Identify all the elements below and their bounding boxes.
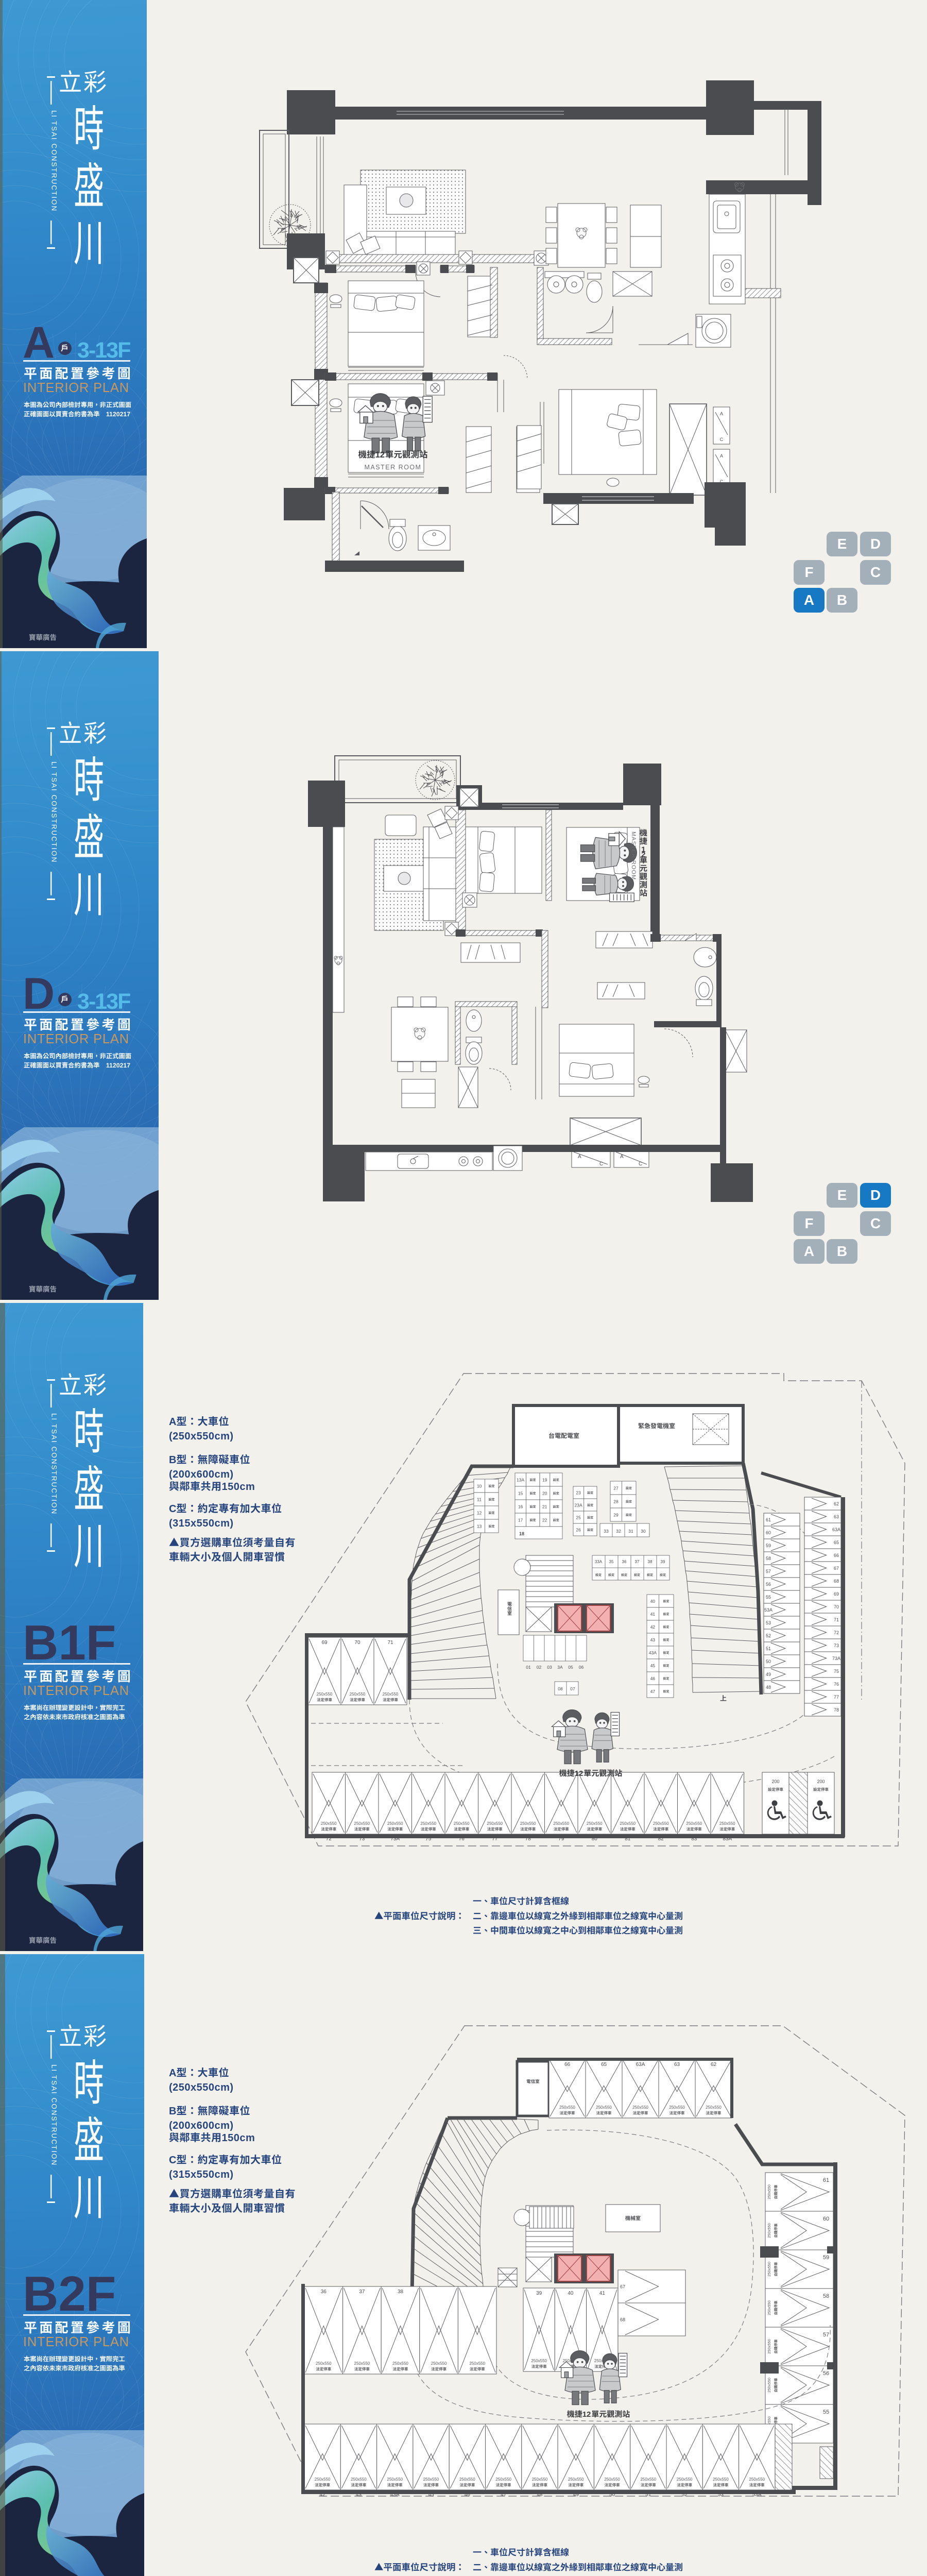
svg-text:250x550: 250x550	[568, 2477, 584, 2482]
svg-text:250x550: 250x550	[596, 2105, 612, 2110]
svg-text:38: 38	[398, 2289, 404, 2295]
svg-text:250x550: 250x550	[767, 2300, 771, 2315]
svg-text:61: 61	[823, 2177, 829, 2183]
svg-text:250x550: 250x550	[767, 2223, 771, 2238]
svg-text:38: 38	[648, 1560, 653, 1564]
svg-text:250x550: 250x550	[520, 1821, 536, 1826]
svg-text:250x550: 250x550	[532, 2477, 548, 2482]
svg-text:69: 69	[834, 1591, 839, 1597]
svg-text:63A: 63A	[636, 2062, 645, 2067]
svg-text:250x550: 250x550	[767, 2262, 771, 2277]
svg-text:3A: 3A	[557, 1665, 563, 1670]
svg-text:43: 43	[650, 1637, 656, 1642]
svg-text:C: C	[720, 437, 724, 442]
svg-text:250x550: 250x550	[459, 2477, 475, 2482]
svg-text:57: 57	[823, 2332, 829, 2338]
svg-text:43A: 43A	[649, 1650, 657, 1655]
svg-text:12: 12	[375, 450, 385, 460]
svg-text:70: 70	[834, 1604, 839, 1609]
svg-text:250x550: 250x550	[620, 1821, 636, 1826]
svg-text:250x550: 250x550	[392, 2361, 408, 2366]
svg-text:68: 68	[620, 2317, 625, 2323]
svg-text:41: 41	[650, 1612, 656, 1617]
svg-text:22: 22	[542, 1518, 547, 1523]
svg-text:250x550: 250x550	[350, 1692, 366, 1697]
svg-text:A: A	[620, 1154, 624, 1160]
svg-text:12: 12	[575, 1769, 583, 1778]
svg-text:07: 07	[570, 1686, 575, 1691]
svg-text:26: 26	[576, 1528, 581, 1533]
svg-text:250x550: 250x550	[495, 2477, 511, 2482]
svg-text:41: 41	[599, 2291, 606, 2296]
svg-text:37: 37	[635, 1560, 640, 1564]
svg-text:31: 31	[628, 1529, 633, 1534]
svg-text:27: 27	[613, 1486, 619, 1491]
svg-text:250x550: 250x550	[559, 2105, 575, 2110]
svg-text:63A: 63A	[832, 1527, 840, 1532]
svg-text:78: 78	[834, 1707, 839, 1713]
svg-text:15: 15	[518, 1491, 523, 1496]
svg-text:12: 12	[477, 1511, 482, 1516]
svg-text:250x550: 250x550	[686, 1821, 702, 1826]
svg-text:16: 16	[518, 1504, 523, 1510]
svg-text:70: 70	[354, 1640, 360, 1646]
svg-text:62: 62	[711, 2062, 717, 2067]
svg-text:71: 71	[834, 1617, 839, 1622]
svg-text:47: 47	[650, 1689, 656, 1694]
svg-text:63: 63	[674, 2062, 680, 2067]
svg-text:19: 19	[542, 1478, 547, 1483]
svg-text:250x550: 250x550	[354, 1821, 370, 1826]
svg-text:250x550: 250x550	[767, 2339, 771, 2354]
svg-text:250x550: 250x550	[321, 1821, 337, 1826]
svg-text:C: C	[639, 1161, 642, 1167]
svg-text:55: 55	[766, 1595, 771, 1600]
svg-text:250x550: 250x550	[653, 1821, 669, 1826]
svg-text:13A: 13A	[517, 1478, 524, 1483]
svg-text:250x550: 250x550	[587, 1821, 603, 1826]
svg-text:71: 71	[387, 1640, 393, 1646]
svg-text:250x550: 250x550	[531, 2359, 547, 2363]
svg-text:33A: 33A	[595, 1560, 603, 1564]
svg-text:73A: 73A	[832, 1656, 840, 1661]
svg-text:53: 53	[766, 1620, 771, 1625]
svg-text:08: 08	[558, 1686, 563, 1691]
svg-text:59: 59	[766, 1543, 771, 1548]
svg-text:250x550: 250x550	[713, 2477, 729, 2482]
svg-text:60: 60	[823, 2216, 829, 2222]
svg-text:45: 45	[650, 1663, 656, 1668]
svg-text:39: 39	[536, 2291, 542, 2296]
svg-text:33: 33	[604, 1529, 609, 1534]
svg-text:68: 68	[834, 1579, 839, 1584]
svg-text:250x550: 250x550	[454, 1821, 470, 1826]
svg-text:30: 30	[641, 1529, 646, 1534]
svg-text:05: 05	[568, 1665, 573, 1670]
svg-text:58: 58	[766, 1556, 771, 1561]
svg-text:40: 40	[568, 2291, 574, 2296]
svg-text:250x550: 250x550	[351, 2477, 367, 2482]
svg-text:250x550: 250x550	[487, 1821, 503, 1826]
svg-text:40: 40	[650, 1599, 656, 1604]
svg-text:75: 75	[834, 1669, 839, 1674]
svg-text:250x550: 250x550	[383, 1692, 399, 1697]
svg-text:250x550: 250x550	[767, 2378, 771, 2393]
svg-text:58: 58	[823, 2293, 829, 2299]
svg-text:250x550: 250x550	[669, 2105, 685, 2110]
svg-text:25: 25	[576, 1515, 581, 1520]
svg-text:250x550: 250x550	[317, 1692, 333, 1697]
svg-text:10: 10	[477, 1484, 482, 1489]
svg-text:250x550: 250x550	[431, 2361, 447, 2366]
svg-text:32: 32	[616, 1529, 621, 1534]
svg-text:250x550: 250x550	[469, 2361, 485, 2366]
svg-text:37: 37	[359, 2289, 365, 2295]
svg-text:250x550: 250x550	[354, 2361, 370, 2366]
svg-text:01: 01	[526, 1665, 531, 1670]
svg-text:77: 77	[834, 1694, 839, 1700]
svg-text:250x550: 250x550	[604, 2477, 620, 2482]
svg-text:56: 56	[766, 1582, 771, 1587]
svg-text:69: 69	[321, 1640, 328, 1646]
svg-text:28: 28	[613, 1499, 619, 1504]
svg-text:250x550: 250x550	[767, 2184, 771, 2199]
svg-text:A: A	[578, 1154, 581, 1160]
svg-text:200: 200	[817, 1779, 825, 1784]
svg-text:A: A	[720, 453, 723, 459]
svg-text:56: 56	[823, 2370, 829, 2377]
svg-text:18: 18	[519, 1531, 524, 1536]
svg-text:250x550: 250x550	[423, 2477, 439, 2482]
svg-text:60: 60	[766, 1530, 771, 1535]
svg-text:200: 200	[771, 1779, 779, 1784]
svg-text:36: 36	[622, 1560, 627, 1564]
svg-text:73: 73	[834, 1643, 839, 1648]
svg-text:250x550: 250x550	[387, 1821, 403, 1826]
svg-text:66: 66	[564, 2062, 571, 2067]
svg-text:61: 61	[766, 1517, 771, 1522]
svg-text:250x550: 250x550	[749, 2477, 765, 2482]
svg-text:23: 23	[576, 1490, 581, 1496]
svg-text:250x550: 250x550	[420, 1821, 436, 1826]
svg-text:02: 02	[537, 1665, 542, 1670]
svg-text:250x550: 250x550	[706, 2105, 722, 2110]
svg-text:67: 67	[620, 2284, 625, 2290]
svg-text:250x550: 250x550	[719, 1821, 735, 1826]
svg-text:C: C	[599, 1161, 603, 1167]
svg-text:12: 12	[582, 2410, 591, 2419]
svg-text:17: 17	[518, 1518, 523, 1523]
svg-text:76: 76	[834, 1682, 839, 1687]
svg-text:57: 57	[766, 1569, 771, 1574]
svg-text:50: 50	[766, 1659, 771, 1664]
svg-text:250x550: 250x550	[640, 2477, 656, 2482]
svg-text:A: A	[720, 411, 723, 416]
svg-text:20: 20	[542, 1491, 547, 1496]
svg-text:35: 35	[609, 1560, 614, 1564]
svg-text:250x550: 250x550	[677, 2477, 693, 2482]
svg-text:250x550: 250x550	[315, 2477, 331, 2482]
svg-text:55: 55	[823, 2409, 829, 2415]
svg-text:23A: 23A	[575, 1503, 582, 1508]
svg-text:39: 39	[661, 1560, 665, 1564]
svg-text:46: 46	[650, 1676, 656, 1681]
svg-text:63: 63	[834, 1514, 839, 1519]
svg-text:03: 03	[547, 1665, 552, 1670]
svg-text:66: 66	[834, 1553, 839, 1558]
svg-text:250x550: 250x550	[553, 1821, 569, 1826]
svg-text:59: 59	[823, 2255, 829, 2261]
svg-text:250x550: 250x550	[632, 2105, 648, 2110]
svg-text:49: 49	[766, 1672, 771, 1677]
svg-text:72: 72	[834, 1630, 839, 1635]
svg-text:250x550: 250x550	[387, 2477, 403, 2482]
svg-text:250x550: 250x550	[316, 2361, 332, 2366]
svg-text:65: 65	[834, 1540, 839, 1545]
svg-text:65: 65	[601, 2062, 607, 2067]
svg-text:48: 48	[766, 1685, 771, 1690]
svg-text:11: 11	[477, 1497, 482, 1502]
svg-text:36: 36	[321, 2289, 327, 2295]
svg-text:52: 52	[766, 1633, 771, 1638]
svg-text:67: 67	[834, 1566, 839, 1571]
svg-text:MASTER ROOM: MASTER ROOM	[630, 832, 637, 880]
svg-text:53A: 53A	[764, 1607, 772, 1613]
svg-text:29: 29	[613, 1513, 619, 1518]
svg-text:51: 51	[766, 1646, 771, 1651]
svg-text:06: 06	[579, 1665, 584, 1670]
svg-text:MASTER ROOM: MASTER ROOM	[365, 464, 422, 471]
svg-text:13: 13	[477, 1524, 482, 1529]
svg-text:42: 42	[650, 1624, 656, 1630]
svg-text:21: 21	[542, 1504, 547, 1510]
svg-text:62: 62	[834, 1501, 839, 1506]
